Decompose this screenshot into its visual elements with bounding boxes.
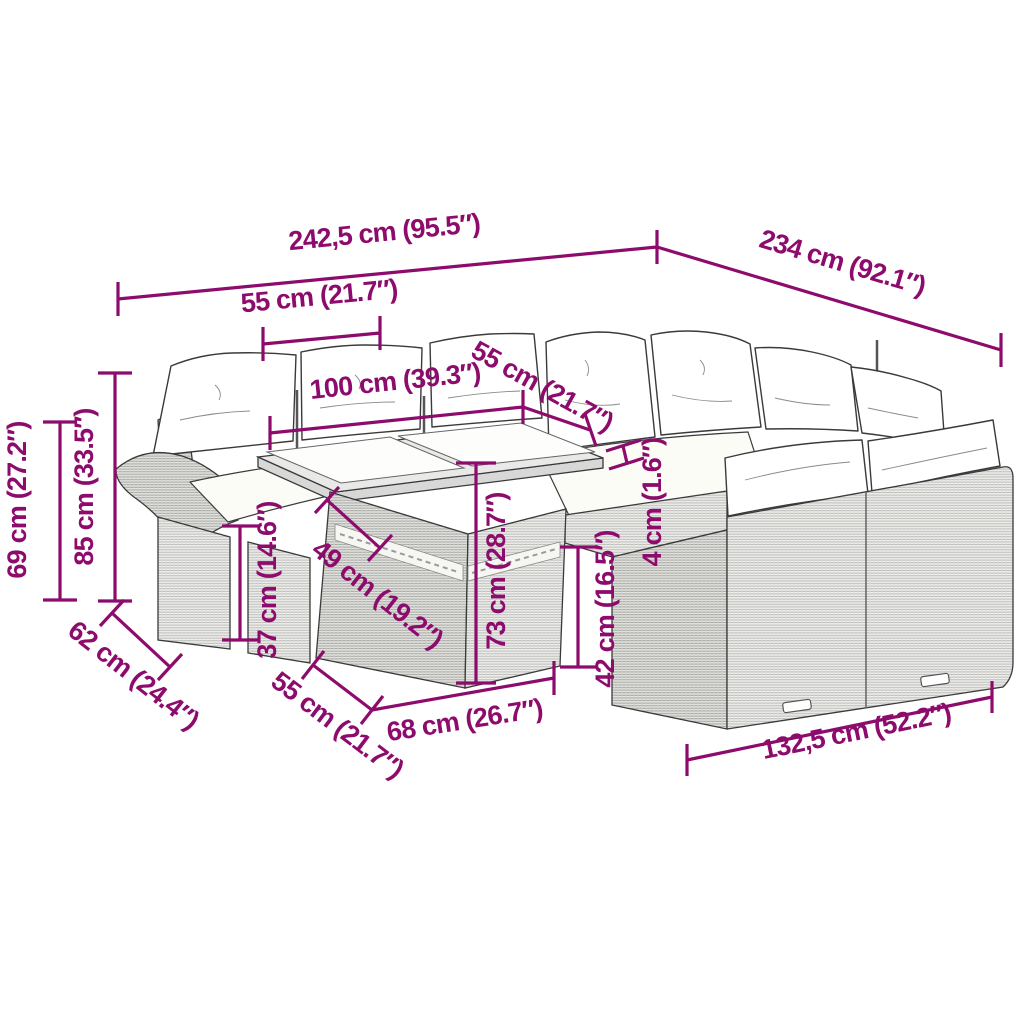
dim-seat-to-arm: 37 cm (14.6″) (222, 501, 282, 658)
dim-armrest-height: 69 cm (27.2″) (2, 421, 77, 600)
dim-seat-height-label: 42 cm (16.5″) (590, 530, 620, 687)
dim-table-height-label: 73 cm (28.7″) (481, 492, 511, 649)
dim-back-height-label: 85 cm (33.5″) (69, 408, 99, 565)
dim-seat-to-arm-label: 37 cm (14.6″) (252, 501, 282, 658)
dim-glass-thickness-label: 4 cm (1.6″) (637, 438, 667, 567)
dim-seat-width-back-label: 55 cm (21.7″) (239, 274, 398, 319)
dim-seat-height: 42 cm (16.5″) (560, 530, 620, 687)
dim-total-width-label: 242,5 cm (95.5″) (287, 208, 481, 256)
dim-table-width-label: 68 cm (26.7″) (385, 693, 545, 747)
diagram-page: 242,5 cm (95.5″) 234 cm (92.1″) 55 cm (2… (0, 0, 1024, 1024)
diagram-canvas: 242,5 cm (95.5″) 234 cm (92.1″) 55 cm (2… (0, 0, 1024, 1024)
dim-total-depth-label: 234 cm (92.1″) (756, 224, 929, 301)
dim-armrest-height-label: 69 cm (27.2″) (2, 421, 32, 578)
